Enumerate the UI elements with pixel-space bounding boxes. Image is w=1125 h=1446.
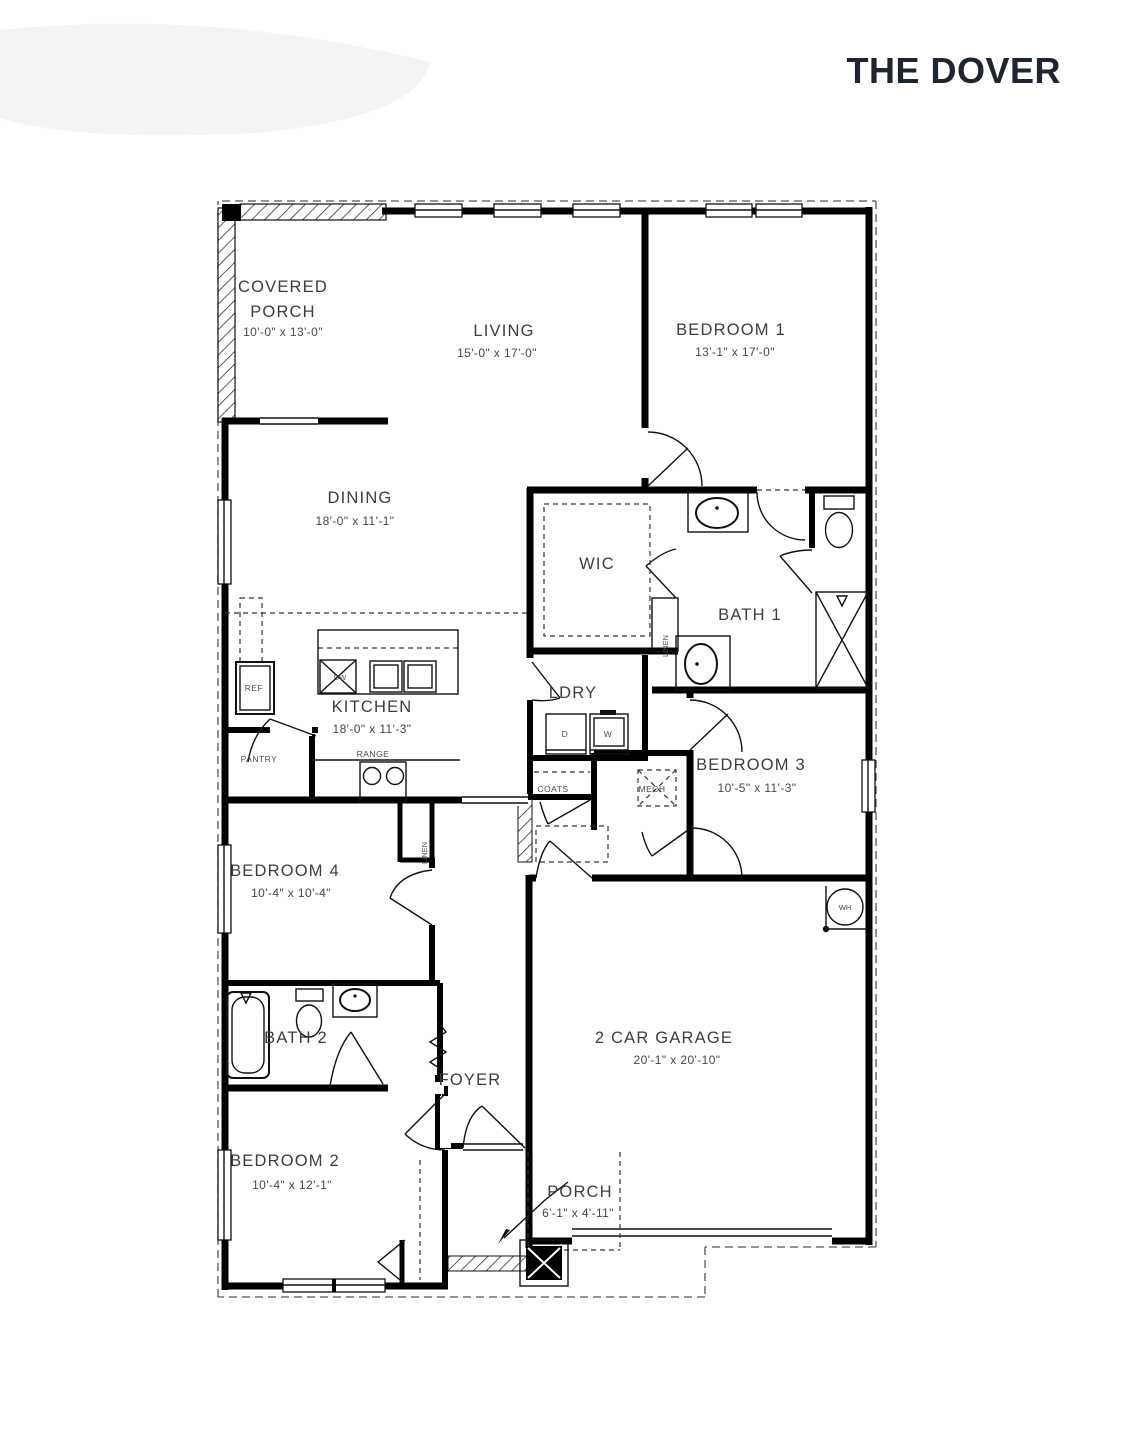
bath2-tub <box>227 992 269 1078</box>
floor-plan-drawing: COVERED PORCH 10'-0" x 13'-0" LIVING 15'… <box>0 0 1125 1446</box>
bath2-sink <box>333 984 377 1017</box>
bath1-toilet <box>824 496 854 548</box>
window-living-2 <box>494 204 541 217</box>
porch-hatch-edges <box>218 204 532 1271</box>
room-dims-dining: 18'-0" x 11'-1" <box>316 514 395 528</box>
room-label-covered-porch-2: PORCH <box>250 303 316 321</box>
label-linen-hall: LINEN <box>420 842 429 864</box>
door-bedroom4 <box>390 870 432 925</box>
roofline-dashed <box>218 201 876 1297</box>
label-washer: W <box>604 729 613 739</box>
room-label-bedroom3: BEDROOM 3 <box>696 756 806 774</box>
room-dims-porch: 6'-1" x 4'-11" <box>542 1206 614 1220</box>
room-dims-bedroom3: 10'-5" x 11'-3" <box>718 781 797 795</box>
door-bedroom1 <box>648 432 702 486</box>
room-dims-living: 15'-0" x 17'-0" <box>457 346 537 360</box>
label-dw: DW <box>334 673 347 682</box>
door-hall-corner <box>692 828 742 878</box>
bath1-sink-bottom <box>676 636 730 690</box>
bath1-shower <box>816 592 868 688</box>
label-range: RANGE <box>357 749 390 759</box>
door-mech <box>642 830 688 856</box>
room-label-bedroom2: BEDROOM 2 <box>230 1152 340 1170</box>
background-smudge <box>0 24 430 136</box>
range <box>310 760 460 802</box>
window-dining <box>218 500 231 584</box>
room-label-dining: DINING <box>328 489 393 507</box>
kitchen-island <box>318 630 458 694</box>
room-label-bath2: BATH 2 <box>264 1029 328 1047</box>
laundry-appliances <box>546 710 628 754</box>
room-label-garage: 2 CAR GARAGE <box>595 1029 733 1047</box>
room-dims-kitchen: 18'-0" x 11'-3" <box>333 722 412 736</box>
label-ref: REF <box>245 683 264 693</box>
porch-leader-arrow <box>498 1229 510 1244</box>
window-bedroom1-1 <box>706 204 752 217</box>
room-dims-bedroom4: 10'-4" x 10'-4" <box>251 886 331 900</box>
room-label-kitchen: KITCHEN <box>332 698 413 716</box>
label-water-heater: WH <box>839 903 852 912</box>
label-linen-bath1: LINEN <box>661 635 670 657</box>
window-living-1 <box>415 204 462 217</box>
island-cabinet-2 <box>404 661 436 692</box>
bath1-fixtures <box>652 492 868 690</box>
room-label-foyer: FOYER <box>439 1071 502 1089</box>
door-bath2 <box>330 1032 383 1086</box>
room-label-wic: WIC <box>579 555 615 573</box>
room-label-ldry: LDRY <box>549 684 598 702</box>
room-label-porch: PORCH <box>547 1183 613 1201</box>
bath1-sink-top <box>688 492 748 532</box>
room-dims-bedroom2: 10'-4" x 12'-1" <box>252 1178 332 1192</box>
label-coats: COATS <box>537 784 568 794</box>
room-dims-garage: 20'-1" x 20'-10" <box>634 1053 721 1067</box>
label-pantry: PANTRY <box>241 754 278 764</box>
label-dryer: D <box>562 729 569 739</box>
door-bath1 <box>757 492 805 540</box>
window-bedroom1-2 <box>756 204 802 217</box>
room-label-bedroom1: BEDROOM 1 <box>676 321 786 339</box>
floor-plan-page: THE DOVER <box>0 0 1125 1446</box>
garage-details <box>498 886 868 1286</box>
label-mech: MECH <box>638 784 665 794</box>
room-dims-covered-porch: 10'-0" x 13'-0" <box>243 325 323 339</box>
window-bedroom4 <box>218 845 231 933</box>
walls <box>222 207 872 1290</box>
room-label-living: LIVING <box>473 322 534 340</box>
door-coats <box>540 800 590 824</box>
island-cabinet-1 <box>370 661 402 692</box>
porch-column <box>520 1240 568 1286</box>
room-label-bedroom4: BEDROOM 4 <box>230 862 340 880</box>
room-dims-bedroom1: 13'-1" x 17'-0" <box>695 345 775 359</box>
thresholds <box>260 414 832 1236</box>
door-bedroom3 <box>690 700 742 752</box>
window-bedroom2-bottom <box>283 1279 385 1292</box>
room-label-covered-porch-1: COVERED <box>238 278 328 296</box>
room-label-bath1: BATH 1 <box>718 606 782 624</box>
window-living-3 <box>573 204 620 217</box>
window-bedroom3 <box>862 760 875 812</box>
window-bedroom2-left <box>218 1150 231 1240</box>
